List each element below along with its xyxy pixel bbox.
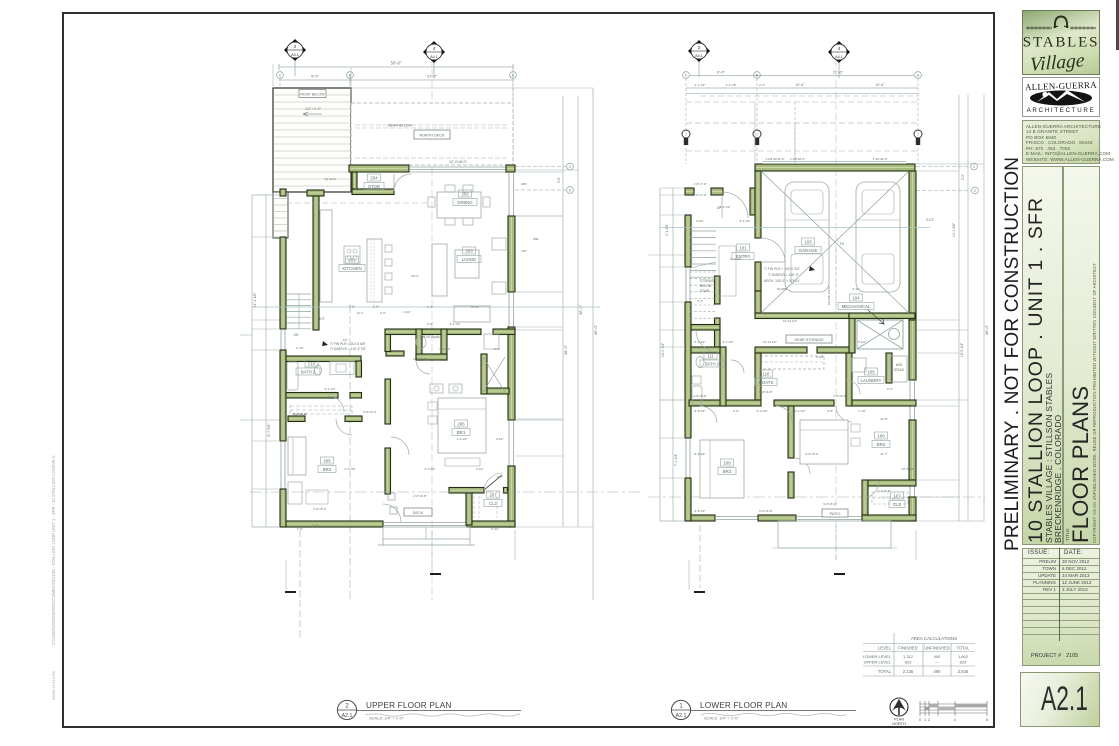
svg-text:0: 0 [919, 718, 921, 722]
svg-text:3'-8": 3'-8" [733, 409, 739, 413]
svg-text:A4.1: A4.1 [430, 55, 438, 59]
svg-text:A: A [512, 74, 515, 78]
svg-text:LOWER FLOOR PLAN: LOWER FLOOR PLAN [700, 701, 787, 710]
svg-text:21'-1: 21'-1 [357, 311, 364, 315]
svg-text:TOTAL: TOTAL [956, 646, 970, 651]
svg-text:A: A [917, 74, 920, 78]
svg-text:8'-8 1/2": 8'-8 1/2" [695, 452, 706, 456]
svg-text:2: 2 [974, 189, 976, 193]
svg-text:1,312: 1,312 [903, 654, 914, 659]
svg-text:7'-1 1/4": 7'-1 1/4" [674, 453, 678, 466]
svg-text:(2) 2x10: (2) 2x10 [324, 177, 335, 181]
svg-text:10'-6": 10'-6" [796, 83, 805, 87]
svg-text:2'-6"x6'-8": 2'-6"x6'-8" [413, 357, 426, 361]
svg-text:DN: DN [294, 333, 299, 337]
svg-text:101: 101 [739, 245, 747, 250]
svg-text:2: 2 [294, 44, 297, 49]
svg-text:3'-1 1/2": 3'-1 1/2" [450, 322, 461, 326]
svg-text:3'-8": 3'-8" [827, 409, 833, 413]
svg-text:206: 206 [457, 421, 465, 426]
svg-text:Village: Village [1030, 50, 1085, 74]
svg-text:9'-1 1/2": 9'-1 1/2" [325, 387, 336, 391]
svg-text:1'-6": 1'-6" [312, 524, 318, 528]
svg-text:ALLEN-GUERRA: ALLEN-GUERRA [1025, 80, 1097, 93]
svg-text:110: 110 [763, 371, 771, 376]
svg-text:4: 4 [433, 46, 436, 51]
svg-text:LEVEL: LEVEL [878, 646, 892, 651]
svg-text:ARCH. 100'-0" = 9713.4': ARCH. 100'-0" = 9713.4' [764, 279, 800, 283]
svg-text:21'-6": 21'-6" [833, 70, 844, 75]
svg-text:6'-0": 6'-0" [887, 387, 893, 391]
svg-text:STACK: STACK [894, 368, 905, 372]
svg-text:10'-11 1/2": 10'-11 1/2" [783, 319, 797, 323]
svg-text:1'-6": 1'-6" [297, 527, 303, 531]
svg-text:19'-5 1/4": 19'-5 1/4" [960, 342, 964, 357]
svg-text:3'-0": 3'-0" [494, 347, 500, 351]
svg-text:46'-0": 46'-0" [593, 324, 598, 335]
svg-text:50'-0": 50'-0" [391, 61, 402, 66]
svg-text:NORTH DECK: NORTH DECK [419, 134, 445, 138]
svg-text:1'-6"x7'-0": 1'-6"x7'-0" [693, 182, 706, 186]
svg-text:1-1/8 CPx8'-0": 1-1/8 CPx8'-0" [765, 157, 784, 161]
svg-text:BR2: BR2 [323, 467, 332, 472]
svg-text:FD: FD [840, 242, 845, 246]
svg-text:9 1/2": 9 1/2" [696, 219, 704, 223]
svg-text:SCALE: 1/4" = 1'-0": SCALE: 1/4" = 1'-0" [704, 716, 739, 721]
svg-text:106: 106 [877, 433, 885, 438]
svg-text:SLOPE: SLOPE [777, 287, 787, 291]
svg-text:490: 490 [934, 654, 941, 659]
svg-text:BATH 2: BATH 2 [705, 361, 720, 366]
svg-text:2'-6"x6'-8": 2'-6"x6'-8" [833, 394, 846, 398]
svg-text:11'-8": 11'-8" [880, 417, 887, 421]
svg-text:ABV: ABV [521, 182, 527, 186]
svg-text:KIT: KIT [343, 338, 348, 342]
svg-text:9'-0": 9'-0" [717, 70, 726, 75]
svg-text:2'-6"x6'-8": 2'-6"x6'-8" [693, 394, 706, 398]
svg-text:11'-7": 11'-7" [880, 452, 887, 456]
svg-text:2'-6"x5'-0quot;: 2'-6"x5'-0quot; [420, 335, 440, 339]
svg-text:A4.1: A4.1 [291, 53, 299, 57]
svg-text:14'-0": 14'-0" [471, 305, 479, 309]
svg-text:10'-1 5/8": 10'-1 5/8" [952, 222, 956, 237]
svg-text:4: 4 [954, 718, 956, 722]
svg-text:STABLES: STABLES [1023, 35, 1099, 51]
svg-text:T/ SUBFLR = 110'-5 7/8": T/ SUBFLR = 110'-5 7/8" [330, 347, 367, 351]
svg-text:9 1/2": 9 1/2" [476, 467, 484, 471]
svg-text:NORTH: NORTH [892, 722, 906, 726]
svg-text:2,625: 2,625 [958, 669, 969, 674]
svg-text:14'-0 1/4": 14'-0 1/4" [661, 342, 665, 357]
svg-text:105: 105 [867, 369, 875, 374]
svg-text:PATIO: PATIO [830, 512, 841, 516]
svg-text:2'-4": 2'-4" [759, 83, 765, 87]
svg-text:C:\USERS\OWNER\DOCUMENTS\2105: C:\USERS\OWNER\DOCUMENTS\2105 - STALLION… [51, 456, 56, 646]
svg-text:BEAM BELOW: BEAM BELOW [388, 124, 412, 128]
svg-text:8'-8 1/2": 8'-8 1/2" [695, 409, 706, 413]
svg-text:CL2: CL2 [893, 502, 902, 507]
svg-text:6'-0"x5'-0": 6'-0"x5'-0" [293, 412, 306, 416]
svg-text:2'-1 1/8": 2'-1 1/8" [665, 224, 669, 236]
svg-text:823: 823 [905, 660, 912, 665]
svg-text:ROOF BELOW: ROOF BELOW [300, 93, 325, 97]
svg-text:10'-5 1/4": 10'-5 1/4" [902, 467, 915, 471]
svg-text:2'-4"x6'-8": 2'-4"x6'-8" [877, 489, 890, 493]
svg-text:210: 210 [308, 361, 316, 366]
svg-text:111: 111 [707, 353, 714, 358]
svg-text:21'-1 1/8": 21'-1 1/8" [253, 292, 257, 308]
svg-text:STORAGE: STORAGE [700, 279, 716, 283]
svg-text:T/ FIN PLR = 100'-0 3/4": T/ FIN PLR = 100'-0 3/4" [764, 267, 801, 271]
svg-text:5'-2 1/2": 5'-2 1/2" [731, 257, 742, 261]
svg-text:46'-0": 46'-0" [578, 304, 583, 315]
svg-text:DBL: DBL [533, 237, 539, 241]
svg-text:SCALE: 1/4" = 1'-0": SCALE: 1/4" = 1'-0" [369, 716, 404, 721]
svg-text:GEAR STORAGE: GEAR STORAGE [794, 338, 824, 342]
svg-text:AREA CALCULATIONS: AREA CALCULATIONS [911, 636, 957, 641]
svg-text:DINING: DINING [457, 200, 473, 205]
svg-text:—: — [935, 660, 939, 665]
svg-text:BR1: BR1 [457, 430, 466, 435]
svg-text:LAUNDRY: LAUNDRY [861, 378, 882, 383]
svg-text:10'-6": 10'-6" [876, 83, 885, 87]
svg-text:2'-10": 2'-10" [296, 346, 304, 350]
svg-text:823: 823 [960, 660, 967, 665]
svg-text:5'-2 1/2": 5'-2 1/2" [740, 219, 751, 223]
svg-text:8: 8 [986, 718, 988, 722]
svg-text:1,802: 1,802 [958, 654, 969, 659]
svg-text:A2.1: A2.1 [676, 713, 687, 719]
svg-text:BATH 2: BATH 2 [301, 369, 316, 374]
svg-text:BR2: BR2 [877, 442, 886, 447]
svg-text:KITCHEN: KITCHEN [342, 266, 361, 271]
svg-text:LOWER LEVEL: LOWER LEVEL [863, 654, 892, 659]
svg-text:4'-11": 4'-11" [852, 287, 859, 291]
svg-text:203: 203 [465, 248, 473, 253]
svg-text:205: 205 [323, 458, 331, 463]
svg-text:STAIR: STAIR [700, 289, 710, 293]
svg-text:1'-4 1/2": 1'-4 1/2" [457, 437, 468, 441]
svg-text:1: 1 [924, 718, 926, 722]
svg-text:B: B [349, 74, 352, 78]
svg-text:107: 107 [893, 493, 901, 498]
svg-text:5'-0 1/2": 5'-0 1/2" [695, 340, 706, 344]
svg-text:2'-0"x5'-0": 2'-0"x5'-0" [353, 187, 366, 191]
svg-text:COATS: COATS [759, 380, 774, 385]
svg-text:1: 1 [973, 165, 975, 169]
svg-text:ARCHITECTURE: ARCHITECTURE [1027, 107, 1096, 114]
svg-text:LIVING: LIVING [462, 257, 477, 262]
svg-text:2'-0": 2'-0" [380, 311, 386, 315]
svg-text:2: 2 [928, 718, 930, 722]
svg-text:2,135: 2,135 [903, 669, 914, 674]
svg-text:3'-0": 3'-0" [557, 177, 561, 183]
svg-text:9'-0": 9'-0" [311, 74, 320, 79]
svg-text:CL1: CL1 [489, 501, 498, 506]
svg-text:202: 202 [461, 191, 469, 196]
svg-text:+60": +60" [521, 249, 527, 253]
svg-text:T/ SUBFLR = 100'-0": T/ SUBFLR = 100'-0" [768, 273, 800, 277]
svg-text:5 1/2": 5 1/2" [858, 340, 866, 344]
svg-text:3 1/2": 3 1/2" [403, 310, 411, 314]
svg-text:2'-1": 2'-1" [497, 475, 503, 479]
svg-text:UPPER LEVEL: UPPER LEVEL [864, 660, 892, 665]
svg-text:3'-2 1/2": 3'-2 1/2" [757, 409, 768, 413]
svg-text:MECHANICAL: MECHANICAL [842, 304, 871, 309]
svg-text:1: 1 [569, 165, 571, 169]
svg-text:A4.1: A4.1 [695, 54, 703, 58]
svg-text:1: 1 [679, 704, 683, 710]
svg-text:4'-2 7/8": 4'-2 7/8" [726, 83, 737, 87]
svg-text:5'-10": 5'-10" [491, 527, 499, 531]
svg-text:1'-6"x7'-0": 1'-6"x7'-0" [693, 193, 706, 197]
svg-text:BELOW: BELOW [700, 284, 712, 288]
svg-text:C: C [279, 74, 282, 78]
svg-text:201: 201 [348, 257, 356, 262]
svg-text:W/D: W/D [896, 363, 903, 367]
svg-text:6'-0"x6'-8": 6'-0"x6'-8" [759, 509, 772, 513]
svg-text:5'-2 1/2": 5'-2 1/2" [720, 205, 731, 209]
svg-text:12'-0"x8'-0": 12'-0"x8'-0" [449, 160, 467, 164]
svg-text:3'-0": 3'-0" [961, 174, 965, 180]
svg-text:2'-0"x5'-0": 2'-0"x5'-0" [805, 452, 818, 456]
svg-text:TOTAL: TOTAL [878, 669, 892, 674]
svg-text:A2.1: A2.1 [342, 713, 353, 719]
svg-text:38'-0": 38'-0" [563, 344, 568, 355]
svg-text:8'-8 1/2": 8'-8 1/2" [695, 509, 706, 513]
svg-text:1/2" / 1'-0": 1/2" / 1'-0" [305, 107, 322, 111]
svg-text:UPPER FLOOR PLAN: UPPER FLOOR PLAN [366, 701, 452, 710]
svg-text:FINISHED: FINISHED [898, 646, 918, 651]
svg-text:4'-0 3/4": 4'-0 3/4" [425, 467, 436, 471]
svg-text:2'-6": 2'-6" [427, 322, 433, 326]
svg-text:UNFINISHED: UNFINISHED [924, 646, 950, 651]
svg-text:20'-4": 20'-4" [411, 274, 419, 278]
svg-text:T/ FIN PLR = 110'-6 5/8": T/ FIN PLR = 110'-6 5/8" [330, 342, 367, 346]
svg-text:8'-1 1/2": 8'-1 1/2" [440, 347, 451, 351]
svg-text:3'-2 1/2": 3'-2 1/2" [723, 340, 734, 344]
svg-text:108: 108 [723, 460, 731, 465]
svg-text:9 1/2": 9 1/2" [926, 218, 934, 222]
svg-text:A4.1: A4.1 [835, 55, 843, 59]
svg-text:KIT: KIT [320, 317, 325, 321]
svg-text:9 1/2": 9 1/2" [496, 437, 504, 441]
svg-text:BR3: BR3 [723, 469, 732, 474]
svg-text:46'-0": 46'-0" [984, 324, 989, 335]
svg-text:DECK: DECK [413, 511, 424, 515]
svg-text:GARAGE: GARAGE [799, 248, 818, 253]
svg-text:6'-0"x5'-0": 6'-0"x5'-0" [363, 410, 376, 414]
svg-text:8'-7 5/8": 8'-7 5/8" [267, 423, 271, 437]
svg-text:3'-1/2": 3'-1/2" [816, 355, 824, 359]
svg-text:6'-0"x6'-8": 6'-0"x6'-8" [759, 390, 772, 394]
svg-text:STOR: STOR [368, 184, 380, 189]
svg-text:2'-6"x6'-8": 2'-6"x6'-8" [413, 494, 426, 498]
svg-text:2: 2 [345, 704, 349, 710]
svg-text:204: 204 [370, 175, 378, 180]
svg-text:104: 104 [852, 295, 860, 300]
svg-text:2'-1 1/2": 2'-1 1/2" [695, 83, 706, 87]
svg-text:1'-4": 1'-4" [427, 305, 433, 309]
svg-text:1'-10"x8'-0": 1'-10"x8'-0" [872, 157, 887, 161]
svg-text:1'-10": 1'-10" [858, 409, 866, 413]
svg-text:6/30/2013 3:14 PM: 6/30/2013 3:14 PM [52, 671, 56, 700]
svg-text:2: 2 [569, 189, 571, 193]
svg-text:9'-0"x8'-0": 9'-0"x8'-0" [823, 502, 836, 506]
svg-text:4: 4 [838, 46, 841, 51]
svg-text:1 1/8"x8'-0": 1 1/8"x8'-0" [790, 157, 805, 161]
svg-text:PLAN: PLAN [894, 718, 904, 722]
svg-text:4'-2 1/2": 4'-2 1/2" [795, 409, 806, 413]
svg-text:2'-0 7/8": 2'-0 7/8" [345, 467, 356, 471]
svg-text:103: 103 [804, 239, 812, 244]
svg-text:490: 490 [934, 669, 942, 674]
svg-text:10'-11 1/2": 10'-11 1/2" [763, 340, 777, 344]
svg-text:3'-4": 3'-4" [697, 299, 703, 303]
svg-text:2: 2 [698, 45, 701, 50]
svg-text:207: 207 [489, 492, 497, 497]
svg-text:6'-0"x5'-0": 6'-0"x5'-0" [313, 507, 326, 511]
svg-text:C: C [685, 74, 688, 78]
